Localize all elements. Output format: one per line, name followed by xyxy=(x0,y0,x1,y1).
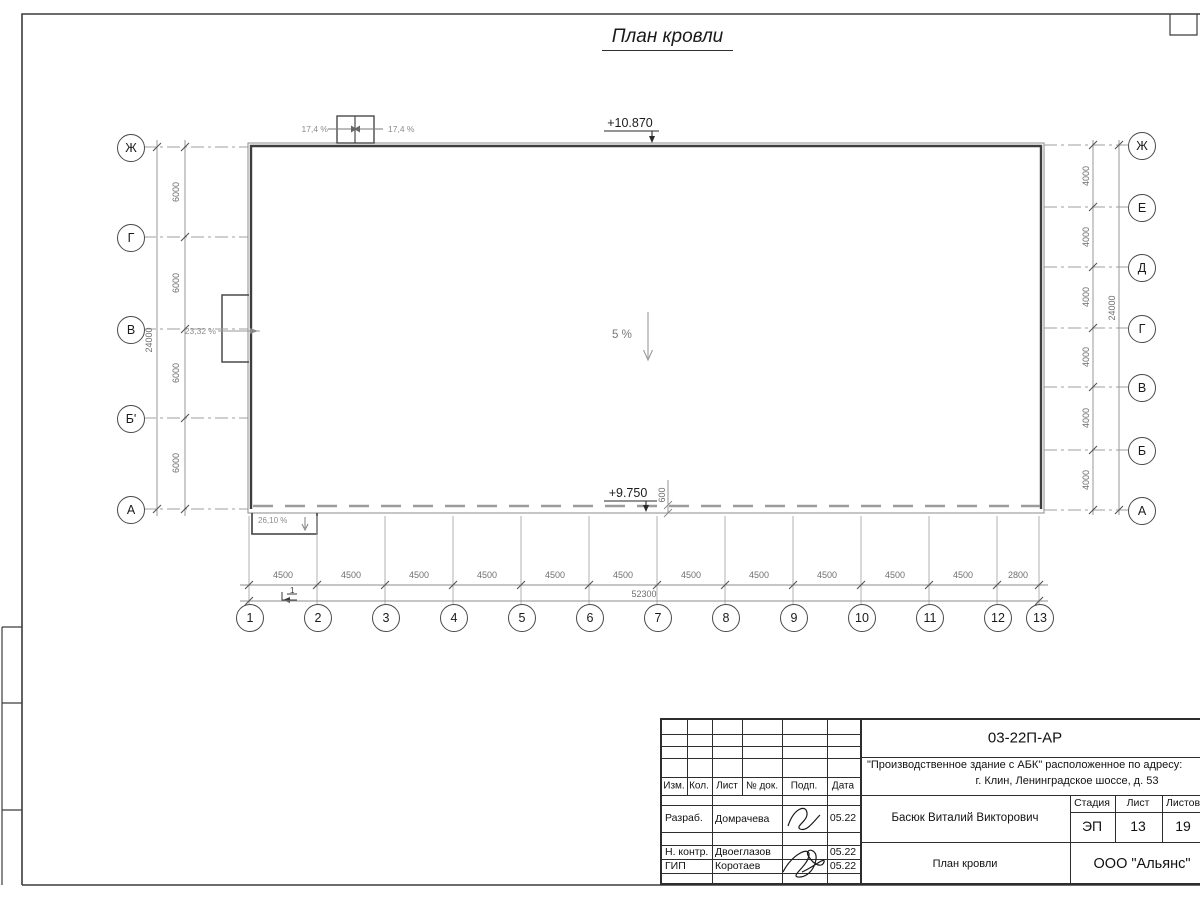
dim-text: 4500 xyxy=(331,570,371,580)
axis-label: Ж xyxy=(125,141,137,155)
column-circle: 6 xyxy=(576,604,604,632)
slope-label: 26,10 % xyxy=(258,516,287,525)
dim-text: 4500 xyxy=(399,570,439,580)
dim-total-text: 52300 xyxy=(614,589,674,599)
column-circle: 4 xyxy=(440,604,468,632)
dim-text: 6000 xyxy=(171,353,181,393)
left-protrusion xyxy=(222,295,249,362)
dim-text: 4500 xyxy=(943,570,983,580)
signature-icon xyxy=(783,850,824,877)
page-title: План кровли xyxy=(540,26,795,48)
dim-text: 6000 xyxy=(171,172,181,212)
axis-circle-right: Д xyxy=(1128,254,1156,282)
column-circle: 7 xyxy=(644,604,672,632)
column-label: 8 xyxy=(723,611,730,625)
dim-text: 4500 xyxy=(807,570,847,580)
dim-text: 4500 xyxy=(739,570,779,580)
column-circle: 5 xyxy=(508,604,536,632)
dim-text: 4500 xyxy=(535,570,575,580)
column-label: 13 xyxy=(1033,611,1047,625)
slope-label: 17,4 % xyxy=(388,124,414,134)
dim-text: 4500 xyxy=(875,570,915,580)
dim-text: 4000 xyxy=(1081,156,1091,196)
axis-circle-left: А xyxy=(117,496,145,524)
axis-circle-left: Ж xyxy=(117,134,145,162)
axis-label: Г xyxy=(128,231,135,245)
frame-notch xyxy=(1170,14,1197,35)
axis-label: Г xyxy=(1139,322,1146,336)
dim-text: 4000 xyxy=(1081,217,1091,257)
dim-text: 4500 xyxy=(263,570,303,580)
axis-circle-right: Г xyxy=(1128,315,1156,343)
column-label: 4 xyxy=(451,611,458,625)
drawing-sheet: План кровли Ж Г В Б' А Ж Е Д Г В Б А 1 2… xyxy=(0,0,1200,900)
axis-label: А xyxy=(1138,504,1146,518)
axis-label: Ж xyxy=(1136,139,1148,153)
canopy-slope-arrow xyxy=(302,517,308,530)
column-label: 6 xyxy=(587,611,594,625)
axis-circle-right: Ж xyxy=(1128,132,1156,160)
axis-label: Б' xyxy=(126,412,137,426)
dim-text: 6000 xyxy=(171,263,181,303)
elevation-label: +9.750 xyxy=(598,486,658,500)
axis-label: Д xyxy=(1138,261,1146,275)
building-outline xyxy=(248,143,1044,513)
dim-total-text: 24000 xyxy=(144,320,154,360)
elevation-label: +10.870 xyxy=(600,116,660,130)
dim-text: 4000 xyxy=(1081,277,1091,317)
axis-label: А xyxy=(127,503,135,517)
dim-text: 2800 xyxy=(998,570,1038,580)
column-circle: 13 xyxy=(1026,604,1054,632)
title-block: Изм. Кол. Лист № док. Подп. Дата Разраб.… xyxy=(660,718,1200,885)
margin-cells xyxy=(2,627,22,885)
axis-label: Е xyxy=(1138,201,1146,215)
axis-circle-right: А xyxy=(1128,497,1156,525)
dim-text: 4500 xyxy=(467,570,507,580)
column-circle: 11 xyxy=(916,604,944,632)
dim-text: 4000 xyxy=(1081,337,1091,377)
slope-label: 17,4 % xyxy=(292,124,328,134)
signatures xyxy=(662,720,1200,883)
dim-text: 4000 xyxy=(1081,460,1091,500)
dim-text: 4500 xyxy=(603,570,643,580)
column-circle: 3 xyxy=(372,604,400,632)
column-label: 10 xyxy=(855,611,869,625)
page-title-text: План кровли xyxy=(602,26,733,51)
parapet-dim-text: 600 xyxy=(657,475,667,515)
axis-label: В xyxy=(127,323,135,337)
axis-circle-right: Б xyxy=(1128,437,1156,465)
column-circle: 10 xyxy=(848,604,876,632)
dim-text: 4000 xyxy=(1081,398,1091,438)
dim-text: 4500 xyxy=(671,570,711,580)
column-label: 7 xyxy=(655,611,662,625)
arrow-left-icon xyxy=(283,597,290,603)
column-circle: 12 xyxy=(984,604,1012,632)
column-label: 2 xyxy=(315,611,322,625)
dim-total-text: 24000 xyxy=(1107,288,1117,328)
slope-label: 23,32 % xyxy=(170,326,216,336)
column-circle: 2 xyxy=(304,604,332,632)
column-label: 3 xyxy=(383,611,390,625)
column-circle: 1 xyxy=(236,604,264,632)
column-label: 1 xyxy=(247,611,254,625)
dim-text: 6000 xyxy=(171,443,181,483)
section-mark-label: 1 xyxy=(290,586,294,595)
axis-circle-left: Г xyxy=(117,224,145,252)
column-label: 11 xyxy=(924,611,937,625)
column-label: 12 xyxy=(991,611,1005,625)
arrow-down-icon xyxy=(649,136,655,143)
axis-circle-right: В xyxy=(1128,374,1156,402)
signature-icon xyxy=(788,808,820,829)
axis-circle-right: Е xyxy=(1128,194,1156,222)
axis-label: Б xyxy=(1138,444,1146,458)
axis-label: В xyxy=(1138,381,1146,395)
column-circle: 9 xyxy=(780,604,808,632)
column-label: 9 xyxy=(791,611,798,625)
column-label: 5 xyxy=(519,611,526,625)
axis-circle-left: В xyxy=(117,316,145,344)
column-circle: 8 xyxy=(712,604,740,632)
axis-circle-left: Б' xyxy=(117,405,145,433)
slope-label: 5 % xyxy=(612,329,632,341)
